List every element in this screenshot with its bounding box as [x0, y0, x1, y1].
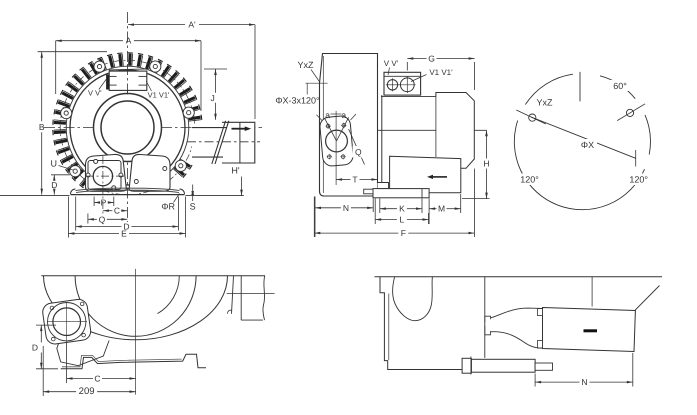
svg-text:P: P — [101, 198, 107, 208]
svg-text:B: B — [39, 122, 45, 132]
svg-text:Q: Q — [355, 147, 362, 157]
svg-text:ΦR: ΦR — [161, 201, 175, 211]
svg-text:K: K — [399, 204, 405, 214]
svg-text:C: C — [94, 374, 100, 384]
svg-text:C: C — [114, 206, 120, 216]
svg-text:Q: Q — [99, 214, 106, 224]
svg-text:V1 V1': V1 V1' — [148, 90, 170, 99]
svg-text:F: F — [401, 228, 406, 238]
svg-text:T: T — [352, 175, 357, 185]
svg-text:120°: 120° — [629, 174, 648, 184]
svg-text:V V': V V' — [384, 59, 399, 68]
svg-text:209: 209 — [79, 386, 95, 397]
svg-text:M: M — [438, 204, 445, 214]
svg-text:J: J — [210, 93, 214, 103]
svg-text:S: S — [190, 202, 196, 212]
svg-text:YxZ: YxZ — [297, 60, 314, 70]
svg-text:V1 V1': V1 V1' — [429, 68, 453, 77]
svg-text:E: E — [121, 228, 127, 238]
svg-text:N: N — [343, 203, 349, 213]
svg-text:U: U — [51, 159, 58, 169]
svg-text:D: D — [32, 343, 38, 353]
svg-text:a: a — [341, 110, 346, 120]
svg-text:60°: 60° — [613, 81, 627, 91]
svg-text:N: N — [581, 377, 587, 387]
svg-text:H: H — [483, 159, 489, 169]
svg-text:YxZ: YxZ — [536, 98, 553, 108]
svg-text:120°: 120° — [520, 174, 539, 184]
svg-text:a: a — [325, 110, 330, 120]
svg-text:V V': V V' — [88, 89, 102, 98]
svg-text:ΦX-3x120°: ΦX-3x120° — [275, 96, 320, 106]
svg-text:A': A' — [188, 20, 196, 30]
svg-text:ΦX: ΦX — [581, 140, 594, 150]
svg-text:H': H' — [231, 165, 239, 175]
svg-text:A: A — [126, 36, 132, 46]
svg-text:D: D — [51, 180, 57, 190]
svg-text:L: L — [400, 215, 405, 225]
svg-text:G: G — [428, 54, 435, 64]
